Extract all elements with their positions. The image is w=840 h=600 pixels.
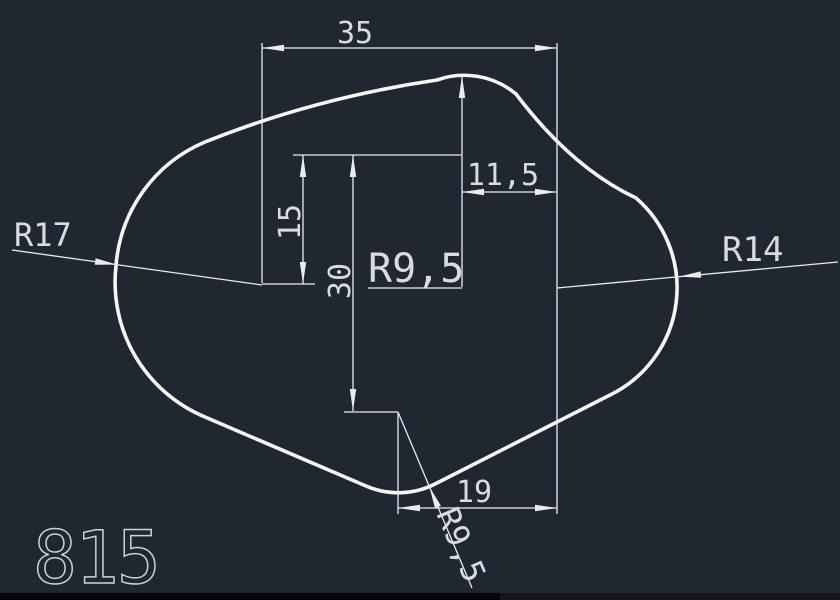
part-number-label: 815 <box>33 516 159 600</box>
arrow-r95-bottom <box>429 487 441 509</box>
arrow-30-bottom <box>350 389 356 411</box>
dim-left-radius[interactable]: R17 <box>12 216 262 285</box>
dim-upper-height[interactable]: 15 <box>273 155 308 284</box>
bottom-edge-bar <box>0 593 840 600</box>
dim-right-offset[interactable]: 11,5 <box>462 158 557 195</box>
arrow-r17 <box>95 258 117 264</box>
arrow-r95-top <box>459 76 465 98</box>
dim-right-radius[interactable]: R14 <box>557 230 838 288</box>
arrow-15-top <box>300 155 306 177</box>
dim-top-radius[interactable]: R9,5 <box>368 76 465 292</box>
dim-text-15: 15 <box>273 204 308 240</box>
arrow-19-left <box>398 505 420 511</box>
cad-model-space[interactable]: 35 11,5 15 30 R9,5 <box>0 0 840 600</box>
dim-text-r14: R14 <box>722 230 783 270</box>
dim-text-30: 30 <box>323 263 358 299</box>
bottom-edge-bar-segment <box>500 593 840 600</box>
dim-text-r95-top: R9,5 <box>368 246 464 292</box>
dim-text-35: 35 <box>337 16 373 51</box>
arrow-35-right <box>535 45 557 51</box>
arrow-35-left <box>262 45 284 51</box>
leader-r17 <box>12 250 262 285</box>
dim-total-height[interactable]: 30 <box>323 155 358 411</box>
arrow-19-right <box>535 505 557 511</box>
arrow-30-top <box>350 155 356 177</box>
cad-drawing: 35 11,5 15 30 R9,5 <box>0 0 840 600</box>
dim-bottom-offset[interactable]: 19 <box>398 475 557 511</box>
dim-top-width[interactable]: 35 <box>262 16 557 51</box>
dim-text-115: 11,5 <box>467 158 539 193</box>
dim-text-r17: R17 <box>14 216 72 254</box>
dim-text-r95-bottom: R9,5 <box>429 502 494 588</box>
arrow-15-bottom <box>300 262 306 284</box>
